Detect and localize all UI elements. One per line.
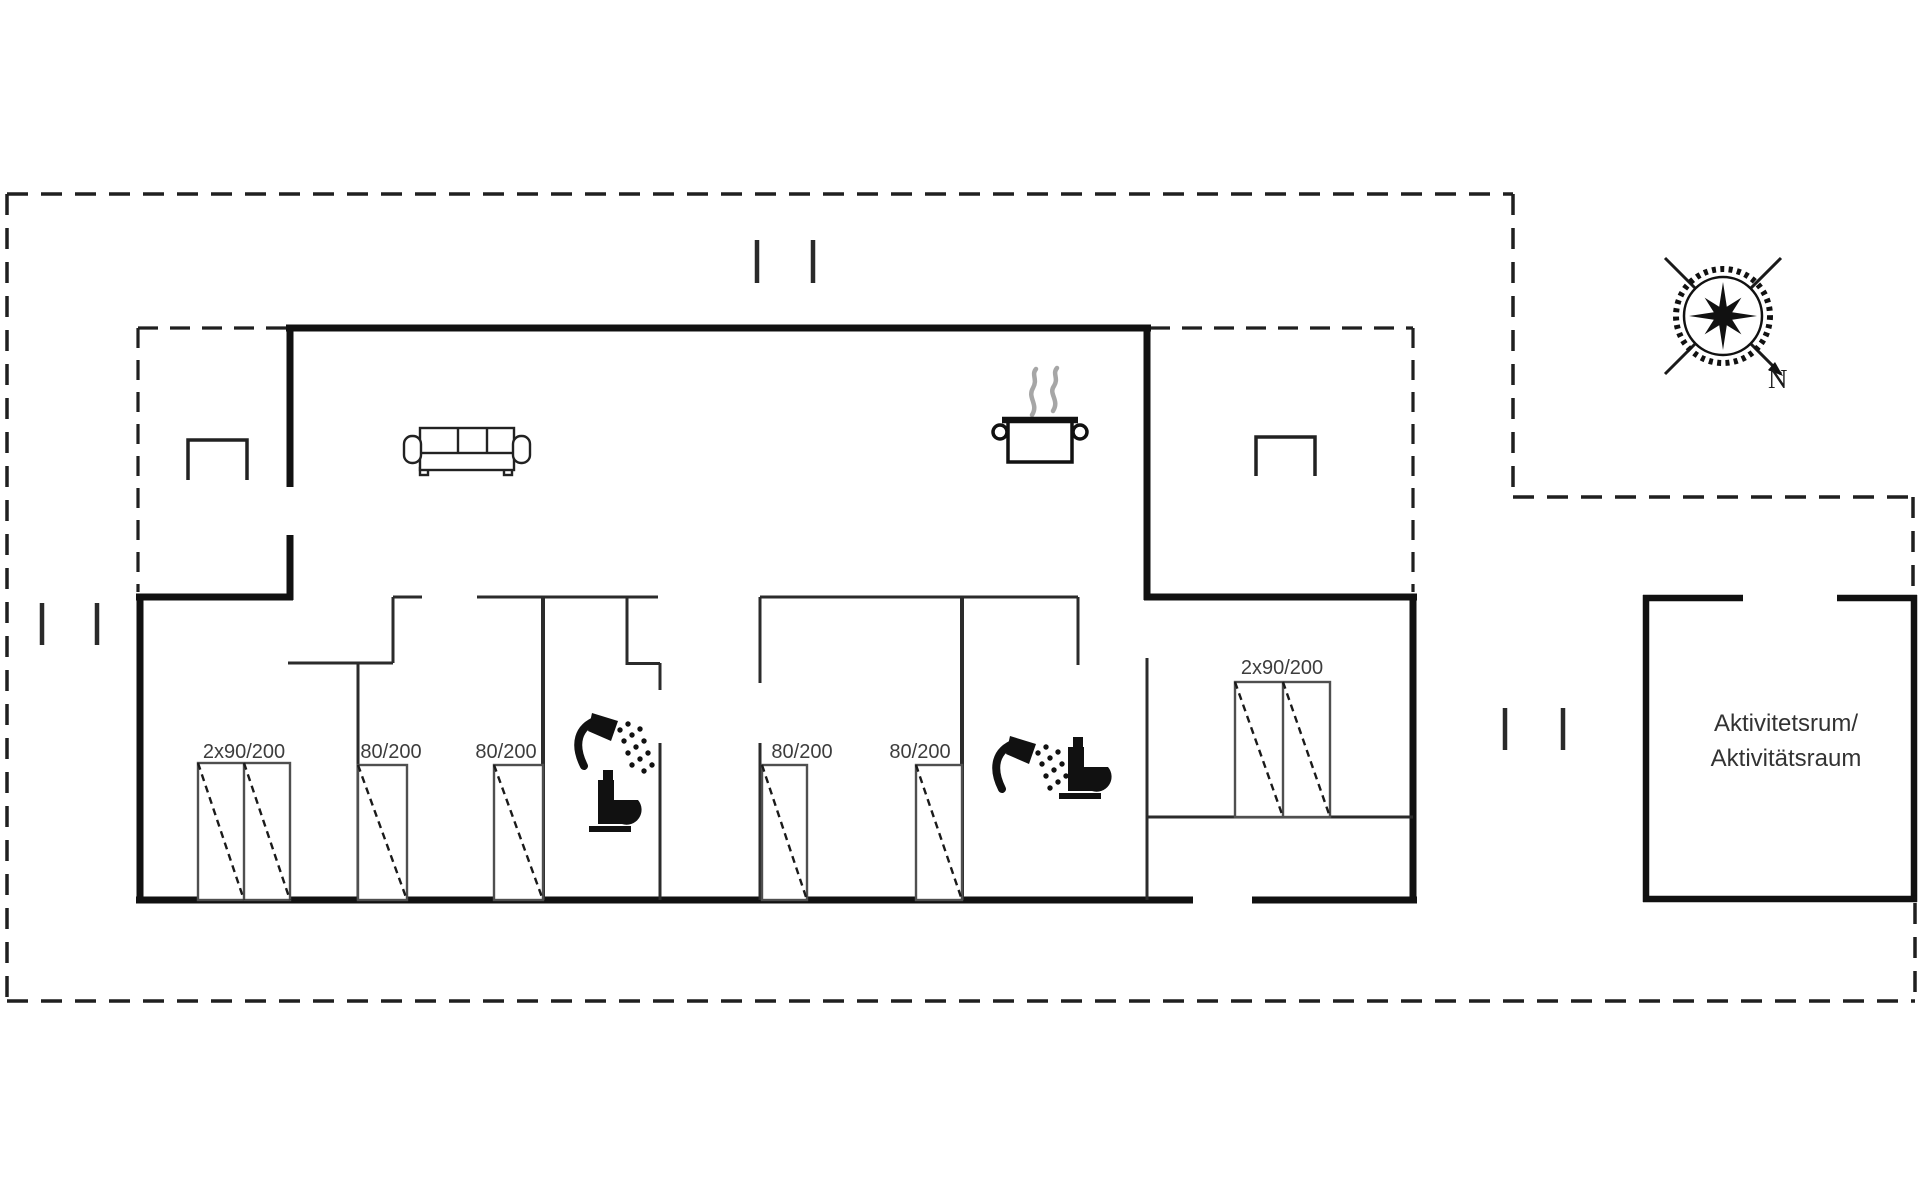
terrace-boundary-dashed (138, 328, 1413, 592)
bed-size-label: 80/200 (360, 741, 421, 763)
activity-room-name-line1: Aktivitetsrum/ (1714, 710, 1858, 737)
bed-symbol-single-4: 80/200 (889, 741, 962, 900)
bed-symbol-single-1: 80/200 (358, 741, 422, 900)
bed-symbol-double-west: 2x90/200 (198, 741, 290, 900)
compass-rose-icon: N (1665, 258, 1788, 394)
bed-size-label: 80/200 (889, 741, 950, 763)
shower-icon (996, 736, 1068, 791)
bed-size-label: 80/200 (771, 741, 832, 763)
activity-room-label: Aktivitetsrum/ Aktivitätsraum (1711, 710, 1862, 772)
terrace-table-icon (1256, 437, 1315, 476)
steam-wave-icon (1031, 369, 1036, 415)
bed-size-label: 2x90/200 (203, 741, 285, 763)
shower-spray-dots (617, 721, 654, 773)
bed-size-label: 80/200 (475, 741, 536, 763)
shower-spray-dots (1035, 744, 1068, 790)
gate-ticks-north (757, 240, 813, 283)
compass-north-label: N (1768, 364, 1788, 394)
steam-wave-icon (1052, 368, 1057, 411)
bed-symbol-single-3: 80/200 (762, 741, 833, 900)
cooking-pot-icon (993, 368, 1087, 462)
terrace-table-icon (188, 440, 247, 480)
bed-size-label: 2x90/200 (1241, 657, 1323, 679)
gate-ticks-west (42, 603, 97, 645)
gate-ticks-east (1505, 708, 1563, 750)
shower-icon (578, 713, 654, 774)
bed-symbol-double-east: 2x90/200 (1235, 657, 1330, 817)
floor-plan-canvas: Aktivitetsrum/ Aktivitätsraum 2x90/200 8… (0, 0, 1920, 1200)
activity-room-name-line2: Aktivitätsraum (1711, 745, 1862, 772)
floor-plan: Aktivitetsrum/ Aktivitätsraum 2x90/200 8… (0, 0, 1920, 1200)
sofa-icon (404, 428, 530, 475)
toilet-icon (589, 770, 642, 829)
bed-symbol-single-2: 80/200 (475, 741, 543, 900)
toilet-icon (1059, 737, 1112, 796)
